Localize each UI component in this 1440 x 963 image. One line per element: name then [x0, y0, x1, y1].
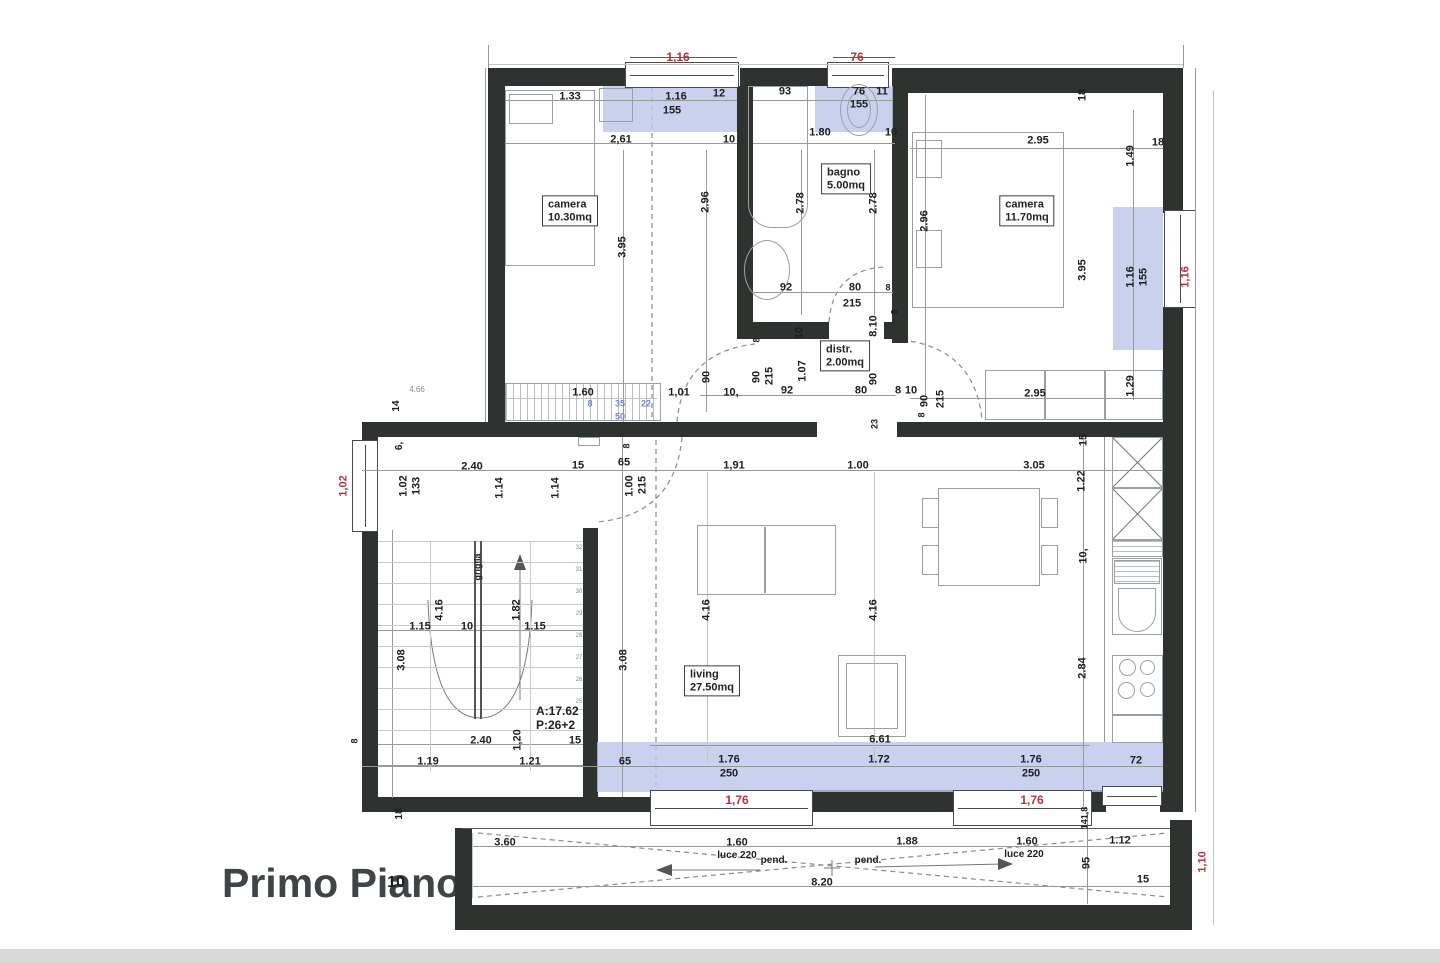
dimension-label: 155 — [663, 106, 681, 117]
furniture-outline — [1041, 498, 1058, 528]
dimension-label: 3.95 — [618, 236, 629, 257]
dimension-label: pend. — [761, 856, 788, 866]
dimension-label: 1,10 — [1198, 851, 1209, 872]
dimension-label: 1.60 — [726, 838, 747, 849]
room-label: distr.2.00mq — [820, 340, 870, 371]
dimension-label: 8 — [753, 337, 762, 342]
dimension-label: 1.60 — [572, 388, 593, 399]
dimension-line — [1213, 90, 1214, 925]
dimension-label: 6, — [395, 442, 405, 450]
dimension-line — [623, 150, 624, 422]
dimension-label: 50 — [615, 413, 625, 422]
dimension-line — [462, 828, 1170, 829]
furniture-outline — [922, 545, 939, 575]
dimension-label: 8 — [891, 309, 900, 314]
dimension-label: 1.07 — [798, 360, 809, 381]
dimension-label: 1,16 — [1181, 266, 1192, 287]
dimension-label: 1.33 — [559, 92, 580, 103]
dimension-label: 3.60 — [494, 838, 515, 849]
dimension-line — [874, 150, 875, 315]
drawing-path — [677, 344, 755, 422]
dimension-label: 10 — [905, 386, 917, 397]
window-frame — [1102, 786, 1162, 806]
dimension-label: 14 — [392, 400, 402, 411]
dimension-label: 1.80 — [809, 128, 830, 139]
dimension-label: 3.05 — [1023, 461, 1044, 472]
stair-note-line: A:17.62 — [536, 704, 579, 718]
room-area: 2.00mq — [826, 356, 864, 369]
dimension-label: 18 — [1152, 138, 1164, 149]
furniture-outline — [916, 230, 942, 268]
dimension-label: 65 — [619, 757, 631, 768]
wall-segment — [455, 905, 1192, 930]
dimension-label: 250 — [1022, 769, 1040, 780]
dimension-label: 1.16 — [1126, 266, 1137, 287]
dimension-label: 22 — [641, 400, 651, 409]
dimension-label: 250 — [720, 769, 738, 780]
drawing-path — [875, 864, 1002, 867]
dimension-line — [392, 530, 393, 798]
dimension-label: 15 — [569, 736, 581, 747]
dimension-label: 10 — [723, 135, 735, 146]
dimension-label: 1,91 — [723, 461, 744, 472]
wall-segment — [884, 322, 908, 339]
room-name: camera — [548, 198, 592, 211]
dimension-label: 90 — [702, 371, 713, 383]
dimension-label: 4.16 — [435, 599, 446, 620]
dimension-line — [488, 45, 489, 68]
wall-segment — [892, 68, 1183, 93]
dimension-label: 4.66 — [409, 386, 425, 394]
room-name: camera — [1005, 198, 1048, 211]
dimension-label: 133 — [412, 477, 423, 495]
dimension-label: 1.82 — [512, 599, 523, 620]
dimension-label: griglia — [474, 553, 483, 580]
window-frame — [352, 440, 378, 532]
dimension-label: 10, — [723, 388, 738, 399]
dimension-label: 95 — [1082, 857, 1093, 869]
dimension-line — [472, 846, 1170, 847]
dimension-label: 8.20 — [811, 878, 832, 889]
room-label: bagno5.00mq — [821, 163, 871, 194]
dimension-label: 3.08 — [397, 649, 408, 670]
dimension-label: 1.00 — [625, 475, 636, 496]
dimension-label: 6.61 — [869, 735, 890, 746]
dimension-line — [362, 766, 1163, 767]
furniture-outline — [1112, 540, 1163, 557]
dimension-label: 1,20 — [513, 729, 524, 750]
dimension-label: 28 — [576, 633, 583, 639]
wall-segment — [362, 797, 653, 812]
floor-plan-canvas: Primo Piano 1,16761.331.16121552,61103.9… — [0, 0, 1440, 963]
drawing-path — [829, 267, 884, 322]
furniture-outline — [1112, 488, 1163, 540]
wall-segment — [362, 528, 378, 812]
dimension-label: 27 — [576, 655, 583, 661]
dimension-label: 65 — [618, 458, 630, 469]
dimension-line — [485, 68, 486, 422]
dimension-label: 15 — [572, 461, 584, 472]
dimension-label: 1.15 — [524, 622, 545, 633]
dimension-label: 29 — [576, 611, 583, 617]
room-label: camera10.30mq — [542, 195, 598, 226]
wall-segment — [488, 86, 505, 430]
dimension-label: 1.88 — [896, 837, 917, 848]
dimension-label: 10 — [461, 622, 473, 633]
dimension-label: 31 — [576, 567, 583, 573]
dimension-label: 12 — [713, 89, 725, 100]
floor-plan-title: Primo Piano — [222, 860, 461, 907]
dimension-label: 8.10 — [869, 315, 880, 336]
furniture-outline — [764, 527, 766, 593]
dimension-label: 72 — [1130, 756, 1142, 767]
dimension-label: 92 — [780, 283, 792, 294]
furniture-outline — [599, 88, 633, 122]
dimension-label: 1.12 — [1109, 836, 1130, 847]
furniture-outline — [1045, 370, 1105, 420]
furniture-outline — [1114, 560, 1160, 584]
stair-note: A:17.62P:26+2 — [536, 704, 579, 733]
dimension-label: 1,01 — [668, 388, 689, 399]
dimension-label: 90 — [869, 373, 880, 385]
room-area: 11.70mq — [1005, 211, 1048, 224]
dimension-label: 8 — [587, 400, 592, 409]
dimension-label: 2.40 — [470, 736, 491, 747]
dimension-label: 35 — [615, 400, 625, 409]
furniture-outline — [1118, 682, 1135, 699]
dimension-label: 1.14 — [495, 477, 506, 498]
dimension-label: 1.76 — [718, 755, 739, 766]
dimension-label: 215 — [638, 476, 649, 494]
wall-segment — [1170, 820, 1192, 922]
dimension-label: 1.02 — [399, 475, 410, 496]
room-area: 10.30mq — [548, 211, 592, 224]
dimension-line — [1195, 68, 1196, 812]
room-area: 5.00mq — [827, 179, 865, 192]
dimension-line — [1104, 437, 1105, 742]
dimension-label: 1.21 — [519, 757, 540, 768]
dimension-label: 80 — [855, 386, 867, 397]
dimension-label: luce 220 — [717, 851, 756, 861]
dimension-line — [430, 541, 431, 771]
window-highlight — [597, 742, 1163, 792]
wall-segment — [737, 322, 829, 339]
dimension-label: 26 — [576, 677, 583, 683]
dimension-label: 2.95 — [1024, 389, 1045, 400]
dimension-label: 23 — [871, 419, 880, 429]
dimension-label: 10, — [1079, 548, 1090, 563]
room-label: camera11.70mq — [999, 195, 1054, 226]
dimension-label: 10 — [795, 327, 806, 339]
furniture-outline — [1112, 715, 1163, 743]
stair-note-line: P:26+2 — [536, 718, 579, 732]
dimension-label: 18 — [395, 808, 405, 819]
wall-segment — [740, 68, 832, 86]
dimension-label: 18 — [1078, 89, 1089, 101]
dimension-line — [833, 57, 895, 58]
dimension-label: 1.16 — [665, 92, 686, 103]
wall-segment — [1160, 790, 1183, 812]
dimension-label: 2.95 — [1027, 136, 1048, 147]
furniture-outline — [846, 663, 898, 729]
dimension-label: 90 — [752, 371, 763, 383]
dimension-label: 2.96 — [920, 210, 931, 231]
dimension-line — [488, 64, 1183, 65]
dimension-label: 1.14 — [551, 477, 562, 498]
dimension-line — [1183, 45, 1184, 68]
furniture-outline — [1112, 437, 1163, 488]
window-frame — [625, 62, 739, 88]
dimension-label: 15 — [1079, 434, 1090, 446]
room-name: living — [690, 668, 734, 681]
dimension-label: 32 — [576, 545, 583, 551]
dimension-label: 76 — [850, 51, 863, 63]
dimension-label: 155 — [850, 100, 868, 111]
scan-bottom-band — [0, 949, 1440, 963]
dimension-label: 215 — [843, 299, 861, 310]
dimension-label: 8 — [351, 738, 360, 743]
dimension-label: 93 — [779, 87, 791, 98]
furniture-outline — [1140, 660, 1155, 675]
dimension-label: 8 — [885, 284, 890, 293]
furniture-outline — [578, 437, 600, 446]
dimension-label: 1.76 — [1020, 755, 1041, 766]
dimension-label: 1,02 — [339, 475, 350, 496]
dimension-label: 1.15 — [409, 622, 430, 633]
dimension-label: 2.84 — [1078, 657, 1089, 678]
furniture-outline — [916, 140, 942, 178]
dimension-label: 2.40 — [461, 462, 482, 473]
drawing-path — [656, 864, 672, 876]
dimension-label: 15 — [1137, 875, 1149, 886]
dimension-label: 155 — [1139, 268, 1150, 286]
dimension-label: 3.08 — [619, 649, 630, 670]
dimension-label: 30 — [576, 589, 583, 595]
dimension-label: pend. — [855, 856, 882, 866]
dimension-label: 90 — [920, 395, 931, 407]
dimension-label: 8 — [918, 412, 927, 417]
furniture-outline — [1041, 545, 1058, 575]
dimension-label: 1,76 — [1020, 794, 1043, 806]
dimension-label: 76 — [853, 87, 865, 98]
room-name: bagno — [827, 166, 865, 179]
dimension-label: 11 — [876, 87, 888, 98]
furniture-outline — [509, 94, 553, 124]
dimension-label: 4.16 — [869, 599, 880, 620]
dimension-label: 80 — [849, 283, 861, 294]
dimension-line — [530, 541, 531, 771]
dimension-label: 2.78 — [869, 192, 880, 213]
furniture-outline — [922, 498, 939, 528]
wall-segment — [897, 422, 1183, 437]
wall-segment — [1163, 307, 1183, 812]
dimension-label: 2,61 — [610, 135, 631, 146]
dimension-label: 3.95 — [1078, 259, 1089, 280]
dimension-label: 1.49 — [1126, 145, 1137, 166]
furniture-outline — [1119, 659, 1136, 676]
window-frame — [1164, 210, 1196, 308]
dimension-line — [472, 833, 473, 898]
dimension-label: 8 — [895, 386, 901, 397]
dimension-label: luce 220 — [1004, 850, 1043, 860]
wall-segment — [583, 528, 598, 797]
dimension-label: 1.22 — [1077, 470, 1088, 491]
dimension-label: 1.29 — [1126, 375, 1137, 396]
wall-segment — [488, 68, 628, 86]
wall-segment — [812, 790, 955, 812]
room-area: 27.50mq — [690, 681, 734, 694]
room-name: distr. — [826, 343, 864, 356]
furniture-outline — [1140, 682, 1155, 697]
furniture-outline — [697, 525, 836, 595]
dimension-label: 1,76 — [725, 794, 748, 806]
dimension-label: 4.16 — [702, 599, 713, 620]
wall-segment — [1163, 93, 1183, 213]
dimension-label: 92 — [781, 386, 793, 397]
dimension-label: 10 — [387, 875, 405, 891]
dimension-label: 215 — [936, 390, 947, 408]
dimension-label: 1.72 — [868, 755, 889, 766]
dimension-label: 2.96 — [701, 191, 712, 212]
dimension-label: 215 — [765, 367, 776, 385]
room-label: living27.50mq — [684, 665, 740, 696]
wall-segment — [362, 422, 817, 437]
dimension-label: 141,8 — [1081, 807, 1090, 830]
dimension-label: 10 — [885, 128, 897, 139]
furniture-outline — [938, 488, 1040, 586]
dimension-label: 1.00 — [847, 461, 868, 472]
dimension-label: 1.19 — [417, 757, 438, 768]
dimension-label: 8 — [623, 443, 632, 448]
dimension-label: 2.78 — [796, 192, 807, 213]
furniture-outline — [1118, 588, 1156, 632]
dimension-line — [1083, 437, 1084, 807]
dimension-line — [378, 765, 583, 766]
dimension-label: 1.60 — [1016, 837, 1037, 848]
dimension-label: 1,16 — [666, 51, 689, 63]
